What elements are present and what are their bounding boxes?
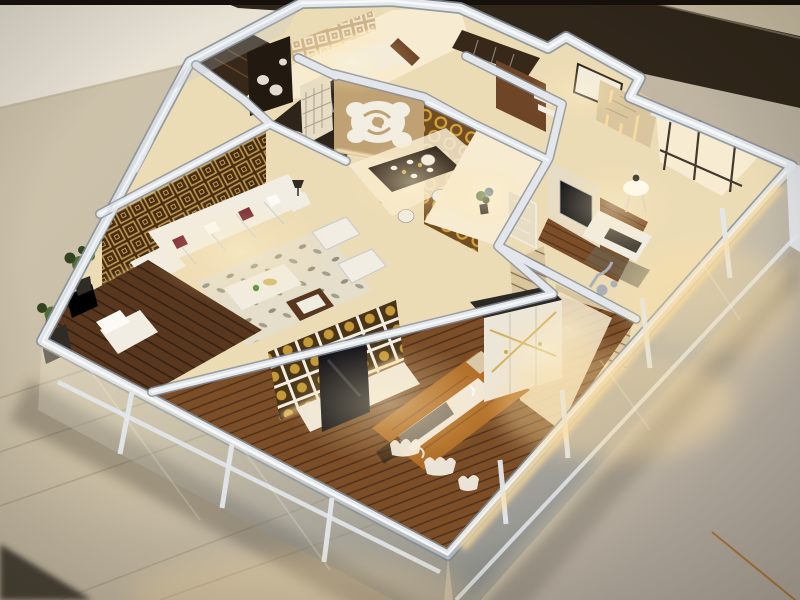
foreground bbox=[0, 0, 800, 600]
photo-architectural-model bbox=[0, 0, 800, 600]
vignette bbox=[0, 0, 800, 600]
model-photo-canvas bbox=[0, 0, 800, 600]
